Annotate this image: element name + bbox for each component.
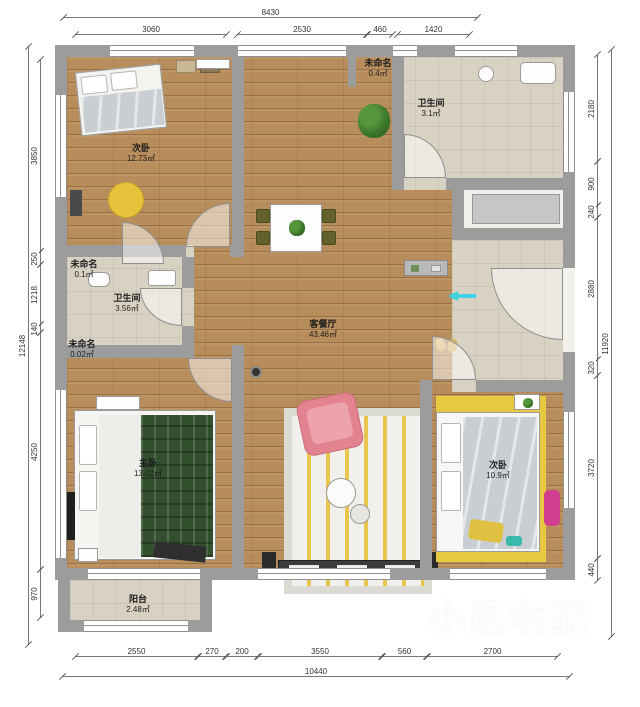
wall-balcony-left [58,580,70,620]
dim-top-seg: 3060 [75,34,227,35]
window [393,45,417,57]
room-label-living: 客餐厅 43.46㎡ [283,319,363,340]
dim-label: 12148 [19,334,27,358]
room-area: 43.46㎡ [283,330,363,340]
dim-right-seg: 3720 [597,376,598,559]
window [55,95,67,197]
dim-right-total: 11920 [611,50,612,637]
dim-label: 2880 [588,279,596,299]
room-label-unnamed-small: 未命名 0.02㎡ [52,339,112,360]
dresser [96,396,140,410]
dim-label: 240 [588,204,596,219]
dim-top-total: 8430 [63,17,478,18]
picture-frame [176,60,196,73]
table-plant-icon [289,220,305,236]
dining-chair [322,209,336,223]
dim-left-seg: 3850 [40,60,41,252]
pillow-teal [506,536,522,546]
hall-cabinet [472,194,560,224]
window [258,568,390,580]
plant-icon [523,398,533,408]
dining-table [270,204,322,252]
wall-interior [420,380,432,568]
dim-label: 11920 [602,332,610,356]
arrow-tail [458,294,476,298]
room-label-bedroom-top: 次卧 12.73㎡ [101,143,181,164]
room-area: 2.48㎡ [98,605,178,615]
room-label-bath-top: 卫生间 3.1㎡ [391,98,471,119]
room-label-balcony: 阳台 2.48㎡ [98,594,178,615]
dim-label: 8430 [261,9,281,17]
shoe-cabinet [404,260,448,276]
blanket [81,89,164,133]
dim-bottom-total: 10440 [62,676,570,677]
watermark: 小尼宅配 [388,588,588,644]
chair-magenta [544,490,560,526]
dim-right-seg: 440 [597,559,598,581]
room-name: 主卧 [108,458,188,469]
wall-interior [55,245,186,257]
room-label-bedroom-right: 次卧 10.9㎡ [458,460,538,481]
dim-bottom-seg: 2550 [75,656,198,657]
room-name: 次卧 [458,460,538,471]
room-name: 未命名 [346,58,410,69]
nightstand [78,548,98,562]
dining-chair [322,231,336,245]
sink [478,66,494,82]
bathtub [520,62,556,84]
dining-chair [256,231,270,245]
cube-logo-icon [388,594,422,638]
dim-label: 320 [588,360,596,375]
plaid-blanket [141,415,213,557]
bed-master [74,410,216,560]
room-area: 3.56㎡ [87,304,167,314]
room-name: 未命名 [52,339,112,350]
room-area: 0.1㎡ [54,270,114,280]
dim-label: 3850 [31,146,39,166]
window [110,45,194,57]
dim-bottom-seg: 3550 [258,656,382,657]
balcony-door-window [88,568,200,580]
wall-balcony-right [200,580,212,620]
dim-bottom-seg: 270 [198,656,226,657]
room-name: 卫生间 [87,293,167,304]
wall-interior [446,178,575,190]
pillow [441,423,461,463]
dim-label: 1420 [424,26,444,34]
dim-label: 2700 [483,648,503,656]
floor-plan-canvas: 8430 3060 2530 460 1420 2550 270 200 355… [0,0,640,707]
window [563,412,575,508]
room-label-bath-mid: 卫生间 3.56㎡ [87,293,167,314]
side-table [350,504,370,524]
dining-chair [256,209,270,223]
dim-top-seg: 2530 [237,34,367,35]
coffee-table [326,478,356,508]
window [55,390,67,558]
dim-label: 560 [397,648,412,656]
dim-bottom-seg: 200 [226,656,258,657]
wall-interior [182,257,194,288]
dim-bottom-seg: 560 [382,656,427,657]
watermark-text: 小尼宅配 [428,589,588,643]
dim-top-seg: 1420 [397,34,470,35]
dim-label: 250 [31,251,39,266]
room-label-unnamed-mid: 未命名 0.1㎡ [54,259,114,280]
window [450,568,546,580]
entry-arrow-icon [448,287,478,305]
dim-top-seg: 460 [367,34,393,35]
arrow-head [448,291,458,301]
pillow [110,70,138,91]
dim-right-seg: 2180 [597,55,598,162]
dim-left-total: 12148 [28,47,29,645]
pillow [79,425,97,465]
room-name: 次卧 [101,143,181,154]
dim-left-seg: 1218 [40,265,41,325]
bed-secondary-right [436,412,540,552]
window [238,45,346,57]
dim-label: 1218 [31,285,39,305]
room-area: 12.73㎡ [101,154,181,164]
wall-interior [476,380,563,392]
washbasin [148,270,176,286]
room-name: 未命名 [54,259,114,270]
dim-label: 4250 [31,442,39,462]
dim-right-seg: 900 [597,162,598,206]
wall-tv [67,492,75,540]
dim-label: 2550 [127,648,147,656]
bed-secondary-top [75,64,167,137]
dim-label: 270 [204,648,219,656]
room-label-unnamed-top: 未命名 0.4㎡ [346,58,410,79]
dim-label: 3550 [310,648,330,656]
dim-label: 10440 [304,668,328,676]
wall-interior [232,345,244,568]
room-name: 卫生间 [391,98,471,109]
wall-interior [232,57,244,250]
dim-left-seg: 4250 [40,333,41,570]
dim-label: 970 [31,586,39,601]
room-area: 10.9㎡ [458,471,538,481]
dim-label: 440 [588,562,596,577]
window [84,620,188,632]
room-label-master: 主卧 13.02㎡ [108,458,188,479]
nightstand [514,394,540,410]
floor-lamp-icon [250,366,262,378]
wall-interior [452,228,563,240]
dim-right-seg: 2880 [597,218,598,360]
dim-label: 3060 [141,26,161,34]
room-area: 13.02㎡ [108,469,188,479]
dim-label: 900 [588,176,596,191]
window [455,45,517,57]
radiator [196,59,230,69]
room-area: 0.4㎡ [346,69,410,79]
pillow [80,74,108,95]
window [563,92,575,172]
cushion [306,401,355,445]
room-area: 0.02㎡ [52,350,112,360]
dim-label: 460 [372,26,387,34]
room-name: 客餐厅 [283,319,363,330]
entry-door-opening [563,268,575,352]
dim-label: 2530 [292,26,312,34]
wall-interior [230,245,244,257]
round-rug-yellow [108,182,144,218]
room-name: 阳台 [98,594,178,605]
decor-item [411,265,419,272]
dim-label: 200 [234,648,249,656]
dim-bottom-seg: 2700 [427,656,558,657]
plant-icon [358,104,390,138]
dim-left-seg: 970 [40,570,41,618]
desk [70,190,82,216]
dim-label: 3720 [588,458,596,478]
pillow [79,471,97,511]
decor-item [431,265,441,272]
dim-label: 2180 [588,99,596,119]
room-area: 3.1㎡ [391,109,471,119]
wall-interior [392,178,404,190]
